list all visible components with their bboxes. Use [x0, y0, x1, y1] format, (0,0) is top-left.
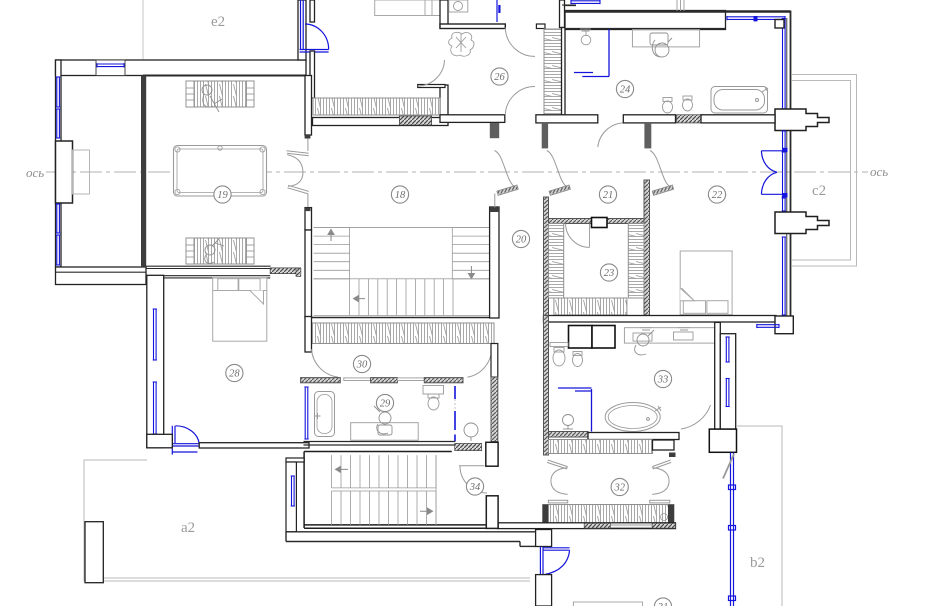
svg-text:a2: a2 — [181, 520, 195, 536]
svg-text:21: 21 — [603, 190, 614, 201]
svg-text:b2: b2 — [750, 555, 765, 571]
svg-text:18: 18 — [395, 190, 406, 201]
svg-text:33: 33 — [657, 375, 669, 386]
svg-text:23: 23 — [604, 268, 615, 279]
svg-text:22: 22 — [712, 190, 723, 201]
svg-text:30: 30 — [356, 360, 368, 371]
svg-text:19: 19 — [217, 190, 228, 201]
svg-text:29: 29 — [380, 399, 391, 410]
svg-text:31: 31 — [657, 602, 669, 606]
svg-text:20: 20 — [516, 235, 527, 246]
svg-text:34: 34 — [469, 482, 481, 493]
svg-text:24: 24 — [620, 85, 631, 96]
svg-text:ось: ось — [26, 165, 44, 180]
svg-text:28: 28 — [229, 369, 240, 380]
svg-text:32: 32 — [613, 483, 625, 494]
svg-text:ось: ось — [870, 164, 888, 179]
svg-text:26: 26 — [494, 72, 505, 83]
svg-text:e2: e2 — [211, 14, 225, 30]
svg-text:c2: c2 — [812, 183, 826, 199]
